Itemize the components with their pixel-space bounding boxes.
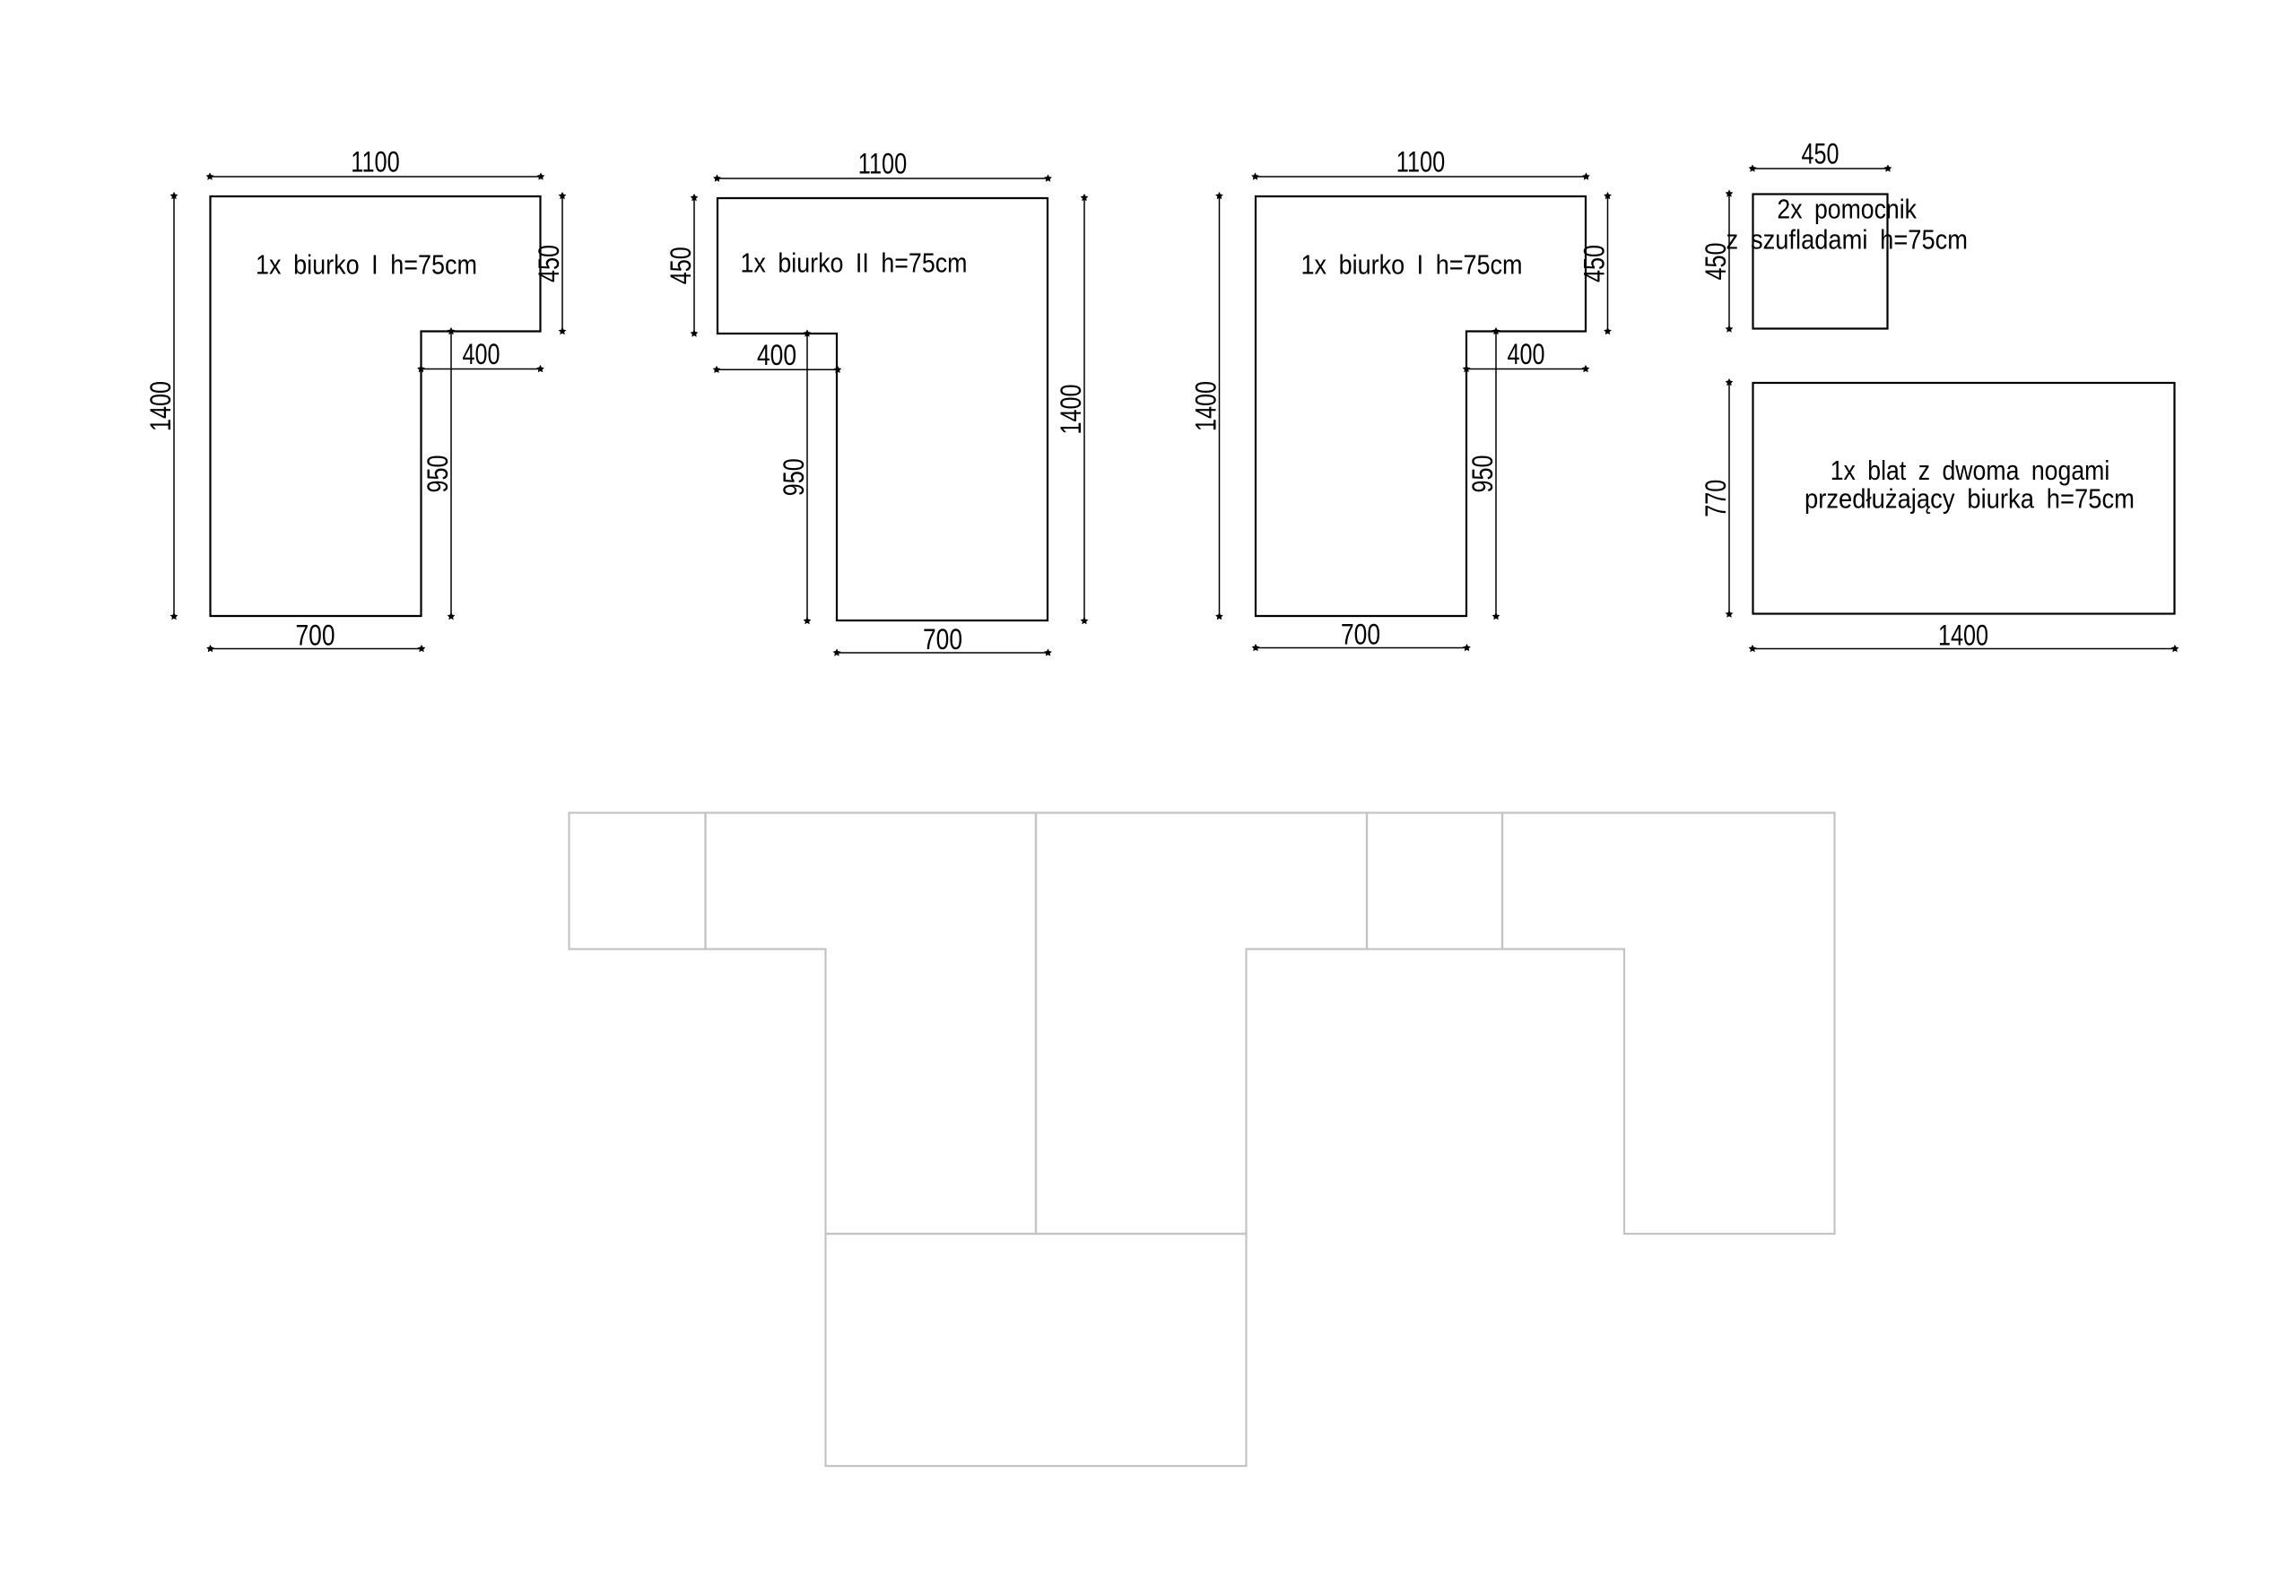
svg-text:950: 950 [1466, 455, 1499, 493]
svg-text:1100: 1100 [858, 148, 908, 180]
svg-text:950: 950 [778, 458, 810, 496]
svg-text:400: 400 [1508, 338, 1545, 370]
svg-text:1400: 1400 [1055, 385, 1087, 435]
svg-text:700: 700 [1341, 619, 1380, 651]
svg-text:1400: 1400 [1190, 381, 1222, 431]
svg-text:450: 450 [1802, 138, 1839, 170]
svg-text:przedłużający biurka h=75cm: przedłużający biurka h=75cm [1805, 483, 2135, 515]
svg-text:1x biurko I h=75cm: 1x biurko I h=75cm [256, 249, 477, 281]
svg-text:770: 770 [1700, 480, 1732, 517]
svg-text:1x biurko I h=75cm: 1x biurko I h=75cm [1301, 249, 1523, 281]
svg-text:1400: 1400 [1938, 620, 1988, 652]
svg-text:2x pomocnik: 2x pomocnik [1777, 194, 1917, 225]
svg-text:700: 700 [923, 623, 962, 655]
svg-text:z szufladami h=75cm: z szufladami h=75cm [1726, 224, 1969, 256]
svg-text:1100: 1100 [351, 146, 400, 178]
svg-text:450: 450 [665, 247, 697, 284]
svg-text:400: 400 [463, 338, 500, 370]
svg-text:450: 450 [533, 245, 565, 282]
svg-text:1x biurko II h=75cm: 1x biurko II h=75cm [741, 247, 968, 279]
svg-text:1x blat z dwoma nogami: 1x blat z dwoma nogami [1831, 455, 2110, 486]
svg-text:1400: 1400 [144, 381, 177, 431]
svg-text:450: 450 [1578, 245, 1611, 282]
svg-text:950: 950 [422, 455, 454, 493]
svg-text:700: 700 [296, 620, 335, 652]
svg-text:1100: 1100 [1396, 146, 1446, 178]
svg-text:400: 400 [757, 339, 796, 371]
